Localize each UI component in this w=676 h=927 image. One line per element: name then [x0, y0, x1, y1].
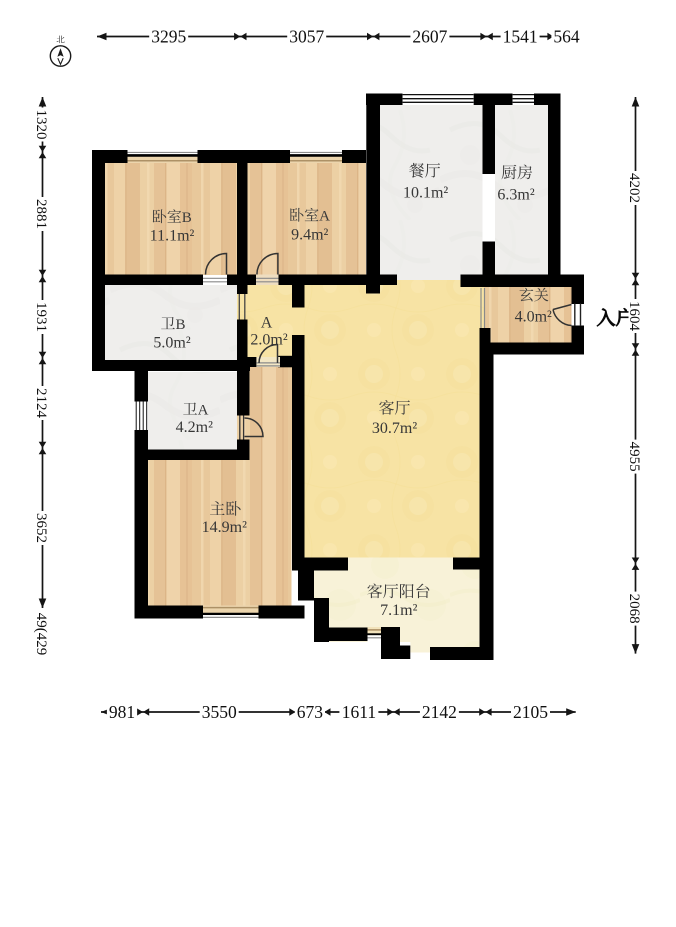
svg-text:49(429: 49(429 — [33, 613, 49, 656]
svg-text:14.9m²: 14.9m² — [202, 519, 247, 536]
svg-text:1320: 1320 — [33, 110, 49, 140]
svg-text:1611: 1611 — [342, 702, 376, 722]
svg-text:1541: 1541 — [503, 27, 538, 47]
svg-text:4.2m²: 4.2m² — [176, 419, 213, 436]
svg-text:A: A — [319, 209, 330, 225]
svg-text:2068: 2068 — [626, 594, 642, 624]
svg-text:2124: 2124 — [33, 388, 49, 419]
svg-text:1604: 1604 — [626, 301, 642, 332]
svg-text:2105: 2105 — [513, 702, 548, 722]
svg-text:10.1m²: 10.1m² — [403, 185, 448, 202]
svg-text:30.7m²: 30.7m² — [372, 420, 417, 437]
svg-text:A: A — [198, 403, 209, 419]
svg-text:3295: 3295 — [151, 27, 186, 47]
svg-text:4955: 4955 — [626, 442, 642, 472]
svg-text:1931: 1931 — [33, 302, 49, 332]
svg-text:564: 564 — [553, 27, 580, 47]
svg-text:7.1m²: 7.1m² — [380, 602, 417, 619]
svg-text:2881: 2881 — [33, 199, 49, 229]
svg-text:3550: 3550 — [202, 702, 237, 722]
svg-text:9.4m²: 9.4m² — [291, 227, 328, 244]
svg-text:4202: 4202 — [626, 173, 642, 203]
svg-text:2607: 2607 — [412, 27, 447, 47]
svg-text:11.1m²: 11.1m² — [150, 228, 195, 245]
svg-text:A: A — [261, 315, 273, 332]
svg-text:5.0m²: 5.0m² — [153, 335, 190, 352]
svg-text:4.0m²: 4.0m² — [515, 309, 552, 326]
svg-text:B: B — [176, 317, 186, 333]
svg-text:3057: 3057 — [289, 27, 324, 47]
svg-text:3652: 3652 — [33, 513, 49, 543]
svg-text:673: 673 — [297, 702, 324, 722]
svg-text:981: 981 — [109, 702, 135, 722]
svg-text:B: B — [182, 210, 192, 226]
svg-text:6.3m²: 6.3m² — [497, 186, 534, 203]
svg-text:2142: 2142 — [422, 702, 457, 722]
svg-text:2.0m²: 2.0m² — [250, 332, 287, 349]
